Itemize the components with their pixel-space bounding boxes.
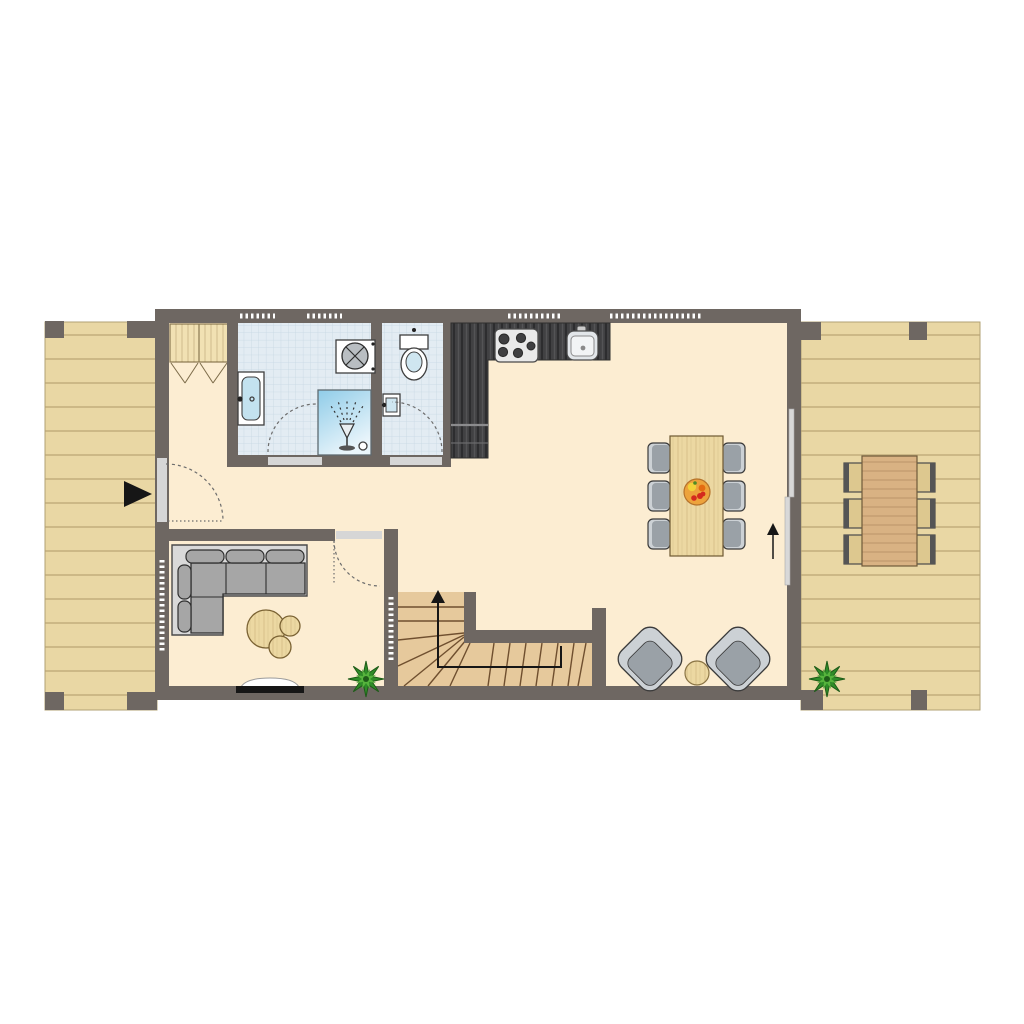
dining-chairs-left xyxy=(648,443,670,549)
drain-icon xyxy=(581,346,586,351)
side-table xyxy=(685,661,709,685)
wc-door xyxy=(390,457,442,465)
deck-post xyxy=(801,322,821,340)
deck-post xyxy=(909,322,927,340)
cooktop xyxy=(495,329,538,362)
dining-chairs-right xyxy=(723,443,745,549)
tv-screen xyxy=(236,686,304,693)
faucet-icon xyxy=(237,396,242,401)
deck-post xyxy=(127,321,157,338)
floor-plan xyxy=(0,0,1024,1024)
deck-post xyxy=(127,692,157,710)
sliding-door-panel xyxy=(789,409,794,497)
hand-basin xyxy=(382,394,400,416)
outdoor-dining-table xyxy=(862,456,917,566)
deck-post xyxy=(801,690,823,710)
drain-icon xyxy=(359,442,367,450)
deck-post xyxy=(45,692,64,710)
washing-machine xyxy=(336,340,375,373)
shower xyxy=(318,390,371,455)
outdoor-chairs-left xyxy=(844,463,863,564)
deck-post xyxy=(911,690,927,710)
washbasin xyxy=(237,372,264,425)
kitchen-sink xyxy=(567,326,598,360)
sliding-door-panel xyxy=(785,497,790,585)
faucet-icon xyxy=(382,403,386,407)
bathroom-door xyxy=(268,457,322,465)
living-room-door xyxy=(336,531,382,539)
deck-post xyxy=(45,321,64,338)
floor-plan-canvas xyxy=(0,0,1024,1024)
fruit-bowl-icon xyxy=(684,479,710,505)
living-room-plant-icon xyxy=(348,661,384,697)
outdoor-chairs-right xyxy=(916,463,935,564)
deck-left xyxy=(45,322,157,710)
terrace-left xyxy=(45,321,157,710)
toilet xyxy=(400,328,428,380)
outdoor-plant-icon xyxy=(809,661,845,697)
entry-door xyxy=(157,458,167,522)
terrace-right xyxy=(801,322,980,710)
